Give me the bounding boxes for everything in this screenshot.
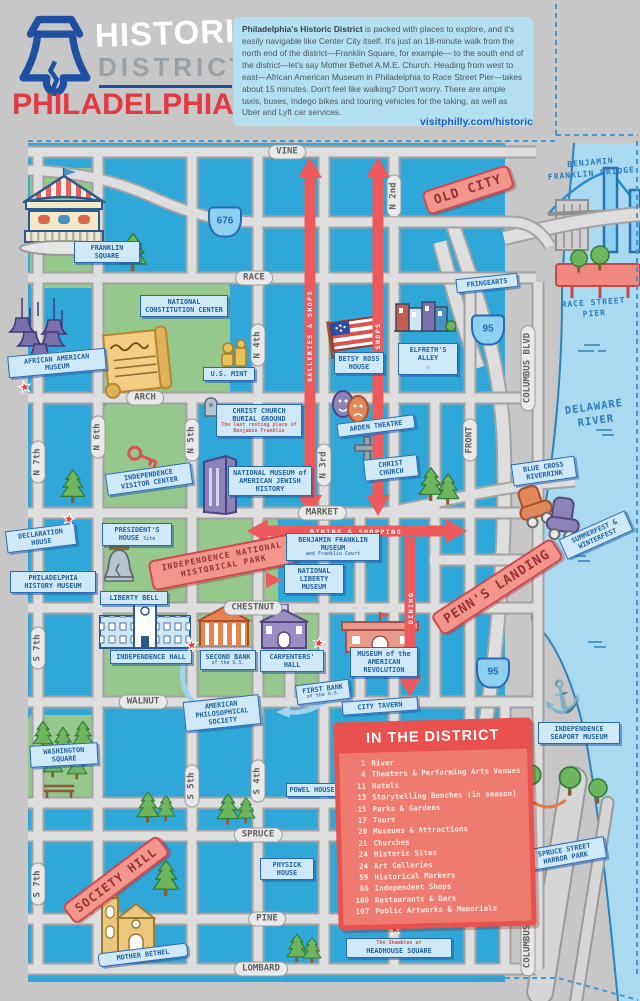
dashed-border bbox=[0, 0, 640, 1001]
historic-district-map: HISTORIC DISTRICT PHILADELPHIA Philadelp… bbox=[0, 0, 640, 1001]
